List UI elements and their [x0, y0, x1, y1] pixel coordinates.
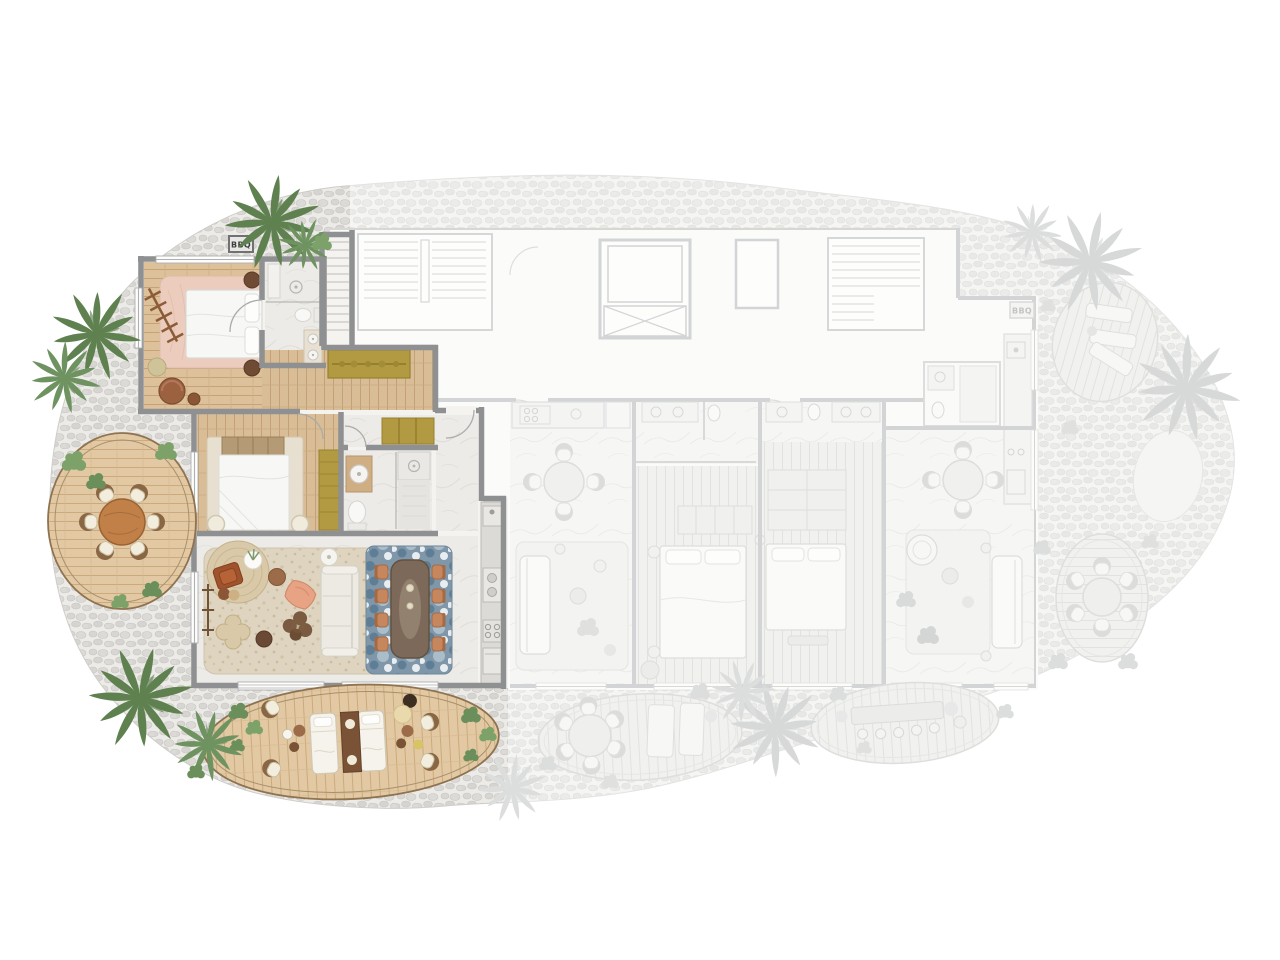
entry-foyer: [382, 418, 434, 444]
sofa: [992, 556, 1022, 648]
outdoor-dining-table: [99, 499, 145, 545]
faded-unit-middle: [510, 402, 632, 684]
sun-lounger: [357, 710, 386, 771]
dark-side-table: [256, 631, 272, 647]
core-service-shaft: [736, 240, 778, 308]
dressing-corridor: [328, 350, 410, 378]
candle: [407, 585, 414, 592]
oven: [483, 648, 502, 674]
side-table: [393, 705, 412, 724]
sun-lounger: [309, 713, 338, 774]
faded-bedroom-a: [636, 402, 758, 684]
dining-area: [366, 546, 452, 674]
brown-ottoman: [269, 569, 286, 586]
bbq-text-right: BBQ: [1012, 307, 1032, 316]
sofa: [520, 556, 550, 654]
round-stool: [208, 516, 225, 533]
dining-table: [943, 460, 983, 500]
small-ottoman: [229, 590, 240, 601]
faucet: [490, 510, 495, 515]
toilet: [349, 501, 366, 523]
small-ottoman: [218, 588, 230, 600]
side-table: [282, 729, 293, 740]
side-table: [188, 393, 200, 405]
faded-bedroom-b: [755, 402, 884, 684]
shower-bench: [268, 264, 280, 298]
core-elevator: [600, 240, 690, 338]
candle: [407, 603, 413, 609]
core-staircase-2: [828, 238, 924, 330]
bedside-table: [244, 272, 260, 288]
faded-round-table-deck: [1056, 534, 1148, 662]
toilet: [295, 309, 311, 322]
kitchen: [481, 502, 504, 684]
entry-closet: [382, 418, 434, 444]
dining-table: [544, 462, 584, 502]
pouf: [148, 358, 166, 376]
core-staircase-1: [358, 234, 492, 330]
bbq-label-right: BBQ: [1010, 302, 1034, 318]
fridge: [606, 402, 630, 428]
second-bedroom: [207, 437, 339, 533]
kitchen-strip: [1004, 334, 1032, 504]
duvet: [219, 455, 289, 530]
sofa: [321, 566, 359, 656]
floorplan-svg: BBQ: [0, 0, 1280, 960]
round-stool: [292, 516, 309, 533]
cooktop: [483, 620, 502, 642]
floorplan-canvas: BBQ: [0, 0, 1280, 960]
bedside-table: [244, 360, 260, 376]
